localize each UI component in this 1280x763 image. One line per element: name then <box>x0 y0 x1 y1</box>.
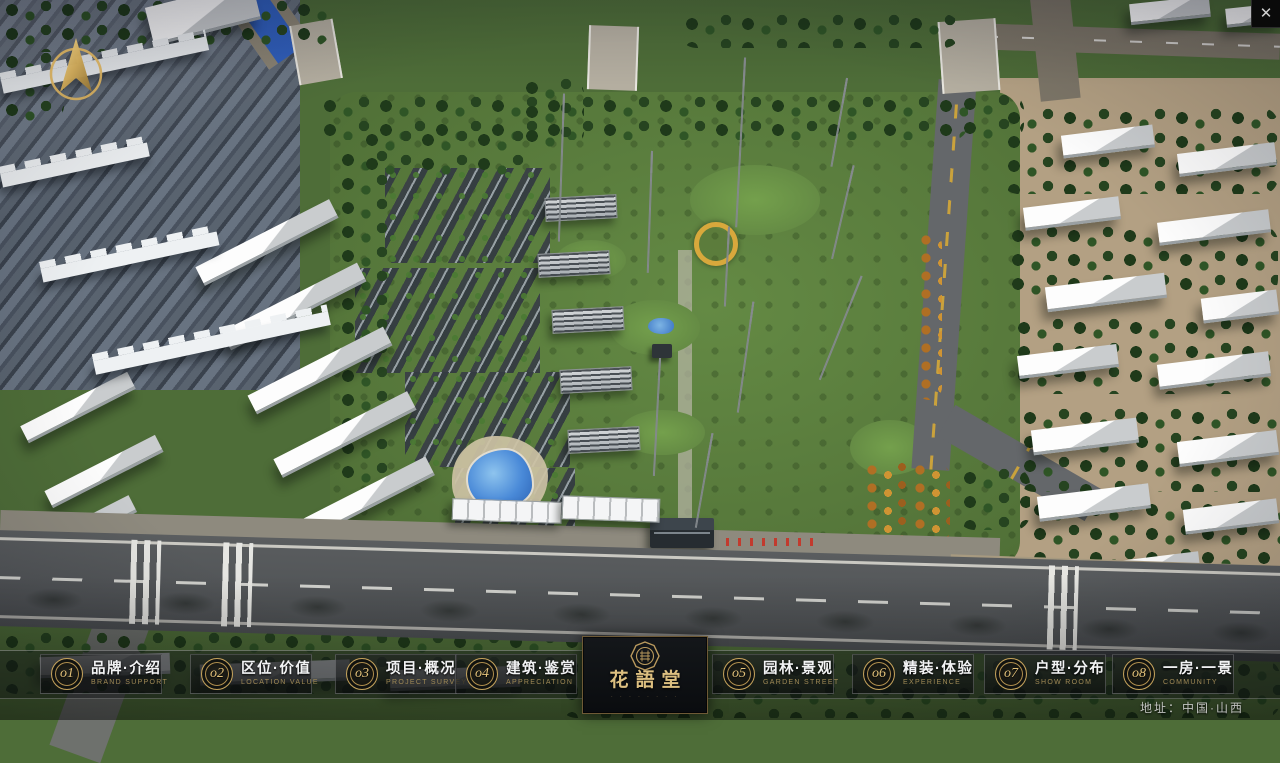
entrance-gate <box>650 518 714 548</box>
number-medallion-icon: o5 <box>723 658 755 690</box>
low-rise-building <box>1129 0 1211 25</box>
midrise-building <box>537 250 610 278</box>
low-rise-building <box>44 435 163 508</box>
midrise-building <box>559 366 632 394</box>
crosswalk <box>129 540 161 625</box>
menu-label-en: APPRECIATION <box>506 679 576 686</box>
menu-item-architecture[interactable]: o4 建筑·鉴赏APPRECIATION <box>455 654 577 694</box>
tree-belt <box>680 14 960 48</box>
menu-label-zh: 精装·体验 <box>903 662 973 677</box>
menu-item-project[interactable]: o3 项目·概况PROJECT SURVEY <box>335 654 457 694</box>
garden-pond <box>648 318 674 334</box>
number-medallion-icon: o7 <box>995 658 1027 690</box>
menu-item-location[interactable]: o2 区位·价值LOCATION VALUE <box>190 654 312 694</box>
midrise-building <box>567 426 640 454</box>
number-medallion-icon: o1 <box>51 658 83 690</box>
menu-label-en: COMMUNITY <box>1163 679 1233 686</box>
menu-item-floorplan[interactable]: o7 户型·分布SHOW ROOM <box>984 654 1106 694</box>
crosswalk <box>221 542 253 627</box>
bridge <box>587 25 639 91</box>
menu-label-zh: 园林·景观 <box>763 662 839 677</box>
center-dashed-line <box>0 576 1280 615</box>
street-canopy <box>452 498 563 524</box>
menu-label-zh: 一房·一景 <box>1163 662 1233 677</box>
project-address: 地址：中国·山西 <box>1140 699 1244 716</box>
menu-label-zh: 建筑·鉴赏 <box>506 662 576 677</box>
tree-belt <box>520 78 584 148</box>
number-medallion-icon: o3 <box>346 658 378 690</box>
seal-emblem-icon <box>630 641 660 671</box>
courtyard-houses <box>385 168 550 263</box>
menu-label-en: SHOW ROOM <box>1035 679 1105 686</box>
menu-item-interior[interactable]: o6 精装·体验EXPERIENCE <box>852 654 974 694</box>
orange-tree-belt <box>916 232 942 400</box>
aerial-masterplan-view[interactable] <box>0 0 1280 720</box>
crosswalk <box>1047 565 1079 650</box>
tree-belt <box>958 468 1030 530</box>
midrise-building <box>544 194 617 222</box>
menu-label-zh: 区位·价值 <box>241 662 319 677</box>
menu-item-garden[interactable]: o5 园林·景观GARDEN STREET <box>712 654 834 694</box>
number-medallion-icon: o8 <box>1123 658 1155 690</box>
gold-sculpture <box>694 222 738 266</box>
menu-label-en: BRAND SUPPORT <box>91 679 168 686</box>
red-flags-row <box>726 538 818 546</box>
project-logo-panel[interactable]: 花語堂 · · · · · · · · <box>582 636 708 714</box>
tree-belt <box>360 130 530 176</box>
menu-item-brand[interactable]: o1 品牌·介绍BRAND SUPPORT <box>40 654 162 694</box>
garden-axis-path <box>678 250 692 550</box>
project-name: 花語堂 <box>609 671 687 692</box>
number-medallion-icon: o2 <box>201 658 233 690</box>
garden-pavilion <box>652 344 672 358</box>
midrise-building <box>551 306 624 334</box>
number-medallion-icon: o6 <box>863 658 895 690</box>
menu-label-en: GARDEN STREET <box>763 679 839 686</box>
menu-item-views[interactable]: o8 一房·一景COMMUNITY <box>1112 654 1234 694</box>
number-medallion-icon: o4 <box>466 658 498 690</box>
close-button[interactable]: ✕ <box>1251 0 1280 28</box>
menu-label-zh: 品牌·介绍 <box>91 662 168 677</box>
menu-label-en: LOCATION VALUE <box>241 679 319 686</box>
compass-north-icon <box>46 34 106 104</box>
menu-label-en: EXPERIENCE <box>903 679 973 686</box>
orange-tree-belt <box>862 462 950 546</box>
project-tagline: · · · · · · · · <box>611 694 679 700</box>
street-canopy <box>562 495 661 522</box>
menu-label-zh: 户型·分布 <box>1035 662 1105 677</box>
